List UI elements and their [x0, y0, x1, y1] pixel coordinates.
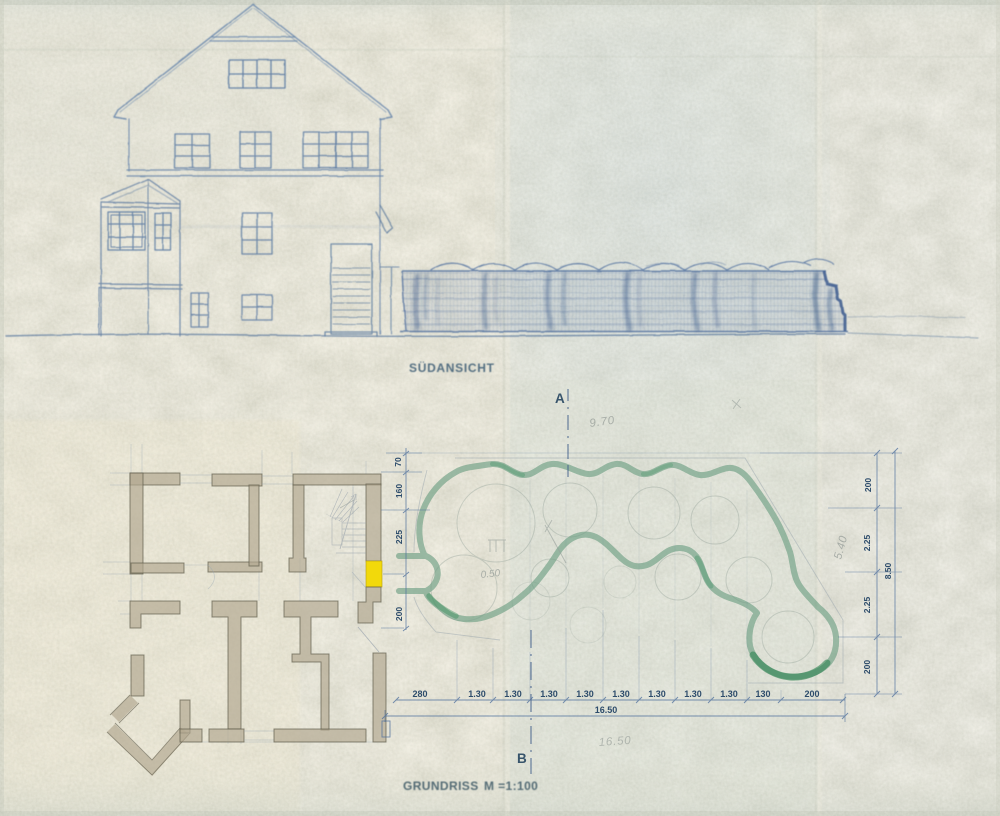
svg-text:1.30: 1.30 [576, 689, 594, 699]
svg-text:B: B [517, 751, 527, 766]
svg-text:280: 280 [412, 689, 427, 699]
svg-text:200: 200 [862, 660, 872, 674]
svg-text:GRUNDRISS: GRUNDRISS [403, 779, 479, 793]
svg-text:8.50: 8.50 [883, 562, 893, 579]
svg-text:200: 200 [863, 478, 873, 492]
svg-text:16.50: 16.50 [598, 735, 632, 749]
svg-text:1.30: 1.30 [504, 689, 522, 699]
svg-text:160: 160 [394, 484, 404, 498]
svg-text:M =1:100: M =1:100 [484, 779, 538, 793]
svg-text:1.30: 1.30 [468, 689, 486, 699]
svg-text:1.30: 1.30 [684, 689, 702, 699]
svg-text:2.25: 2.25 [862, 596, 872, 613]
svg-text:A: A [555, 391, 565, 406]
svg-text:0.50: 0.50 [480, 568, 501, 581]
svg-text:16.50: 16.50 [595, 705, 618, 715]
svg-text:SÜDANSICHT: SÜDANSICHT [409, 360, 495, 375]
svg-text:1.30: 1.30 [720, 689, 738, 699]
svg-text:1.30: 1.30 [540, 689, 558, 699]
svg-text:1.30: 1.30 [648, 689, 666, 699]
svg-text:130: 130 [755, 689, 770, 699]
svg-text:70: 70 [393, 457, 403, 467]
svg-text:200: 200 [804, 689, 819, 699]
svg-text:2.25: 2.25 [862, 534, 872, 551]
svg-text:1.30: 1.30 [612, 689, 630, 699]
svg-text:200: 200 [394, 607, 404, 621]
svg-text:225: 225 [394, 530, 404, 544]
